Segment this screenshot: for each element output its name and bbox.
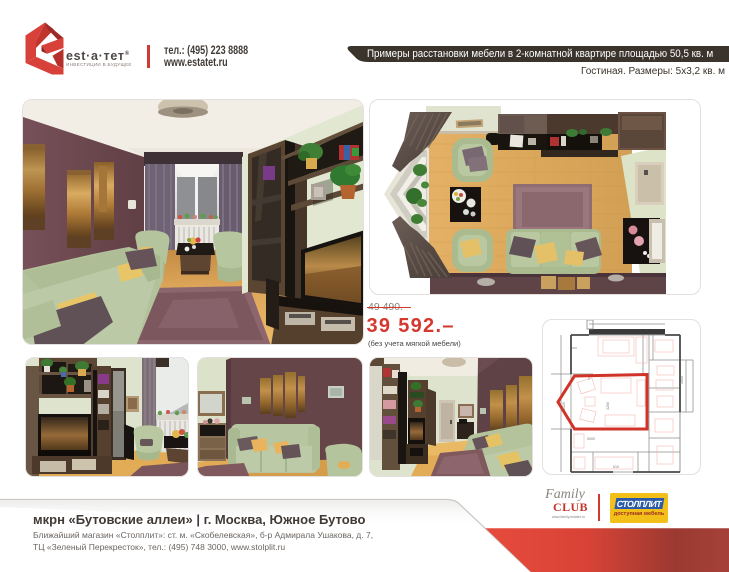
svg-text:2600: 2600 [680, 376, 684, 384]
svg-text:5000: 5000 [587, 437, 595, 441]
svg-text:2320: 2320 [562, 402, 566, 410]
svg-text:СТОЛПЛИТ: СТОЛПЛИТ [616, 499, 663, 509]
svg-text:610: 610 [613, 465, 619, 469]
svg-text:3200: 3200 [606, 402, 610, 410]
